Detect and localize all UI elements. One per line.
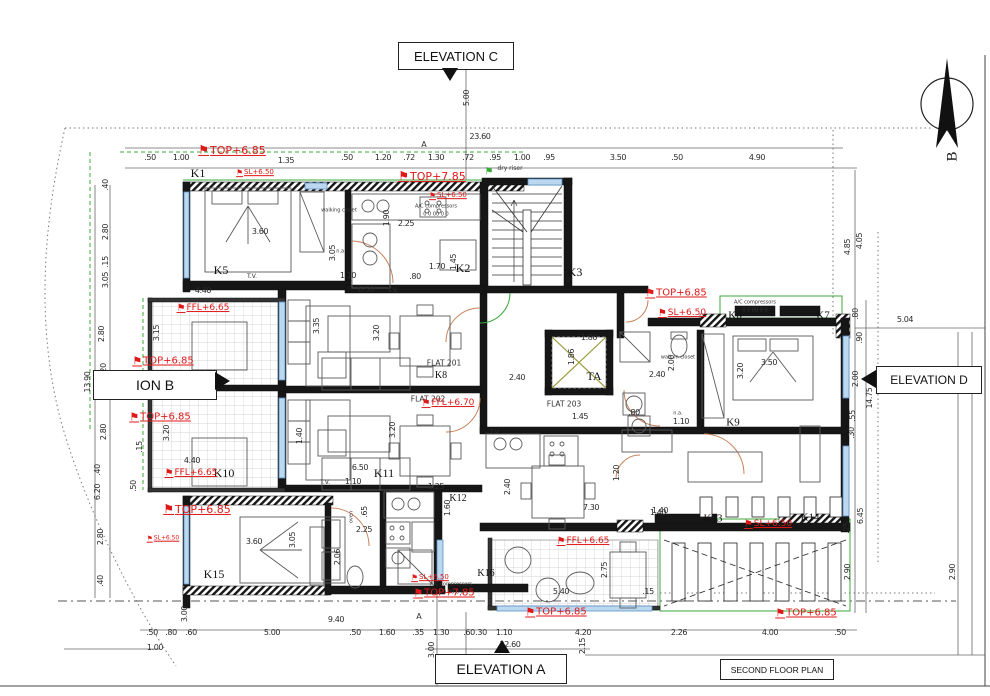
- elevation-c-label: ELEVATION C: [398, 42, 514, 70]
- elevation-a-text: ELEVATION A: [457, 661, 546, 677]
- elevation-d-label: ELEVATION D: [876, 366, 982, 394]
- dry-riser-flag-icon: ⚑: [485, 167, 494, 178]
- elevation-d-arrow: [861, 370, 876, 388]
- elevation-b-text: ION B: [136, 377, 174, 393]
- staircase: [492, 186, 562, 285]
- elevator: [552, 337, 606, 388]
- elevation-c-text: ELEVATION C: [414, 49, 498, 64]
- north-arrow: B: [915, 52, 985, 172]
- floor-plan-canvas: .501.001.35.501.20.721.30.72.951.00.953.…: [0, 0, 990, 696]
- elevation-b-arrow: [215, 372, 230, 390]
- north-letter: B: [945, 151, 962, 161]
- elevation-a-label: ELEVATION A: [435, 654, 567, 684]
- elevation-d-text: ELEVATION D: [890, 373, 968, 387]
- elevation-b-label: ION B: [93, 370, 217, 400]
- floor-plan-title-text: SECOND FLOOR PLAN: [731, 665, 824, 675]
- balcony-grids: [150, 300, 658, 608]
- elevation-c-arrow: [442, 68, 458, 81]
- pergola: [664, 497, 846, 606]
- floor-plan-title: SECOND FLOOR PLAN: [720, 659, 834, 680]
- floorplan-linework: [0, 0, 990, 696]
- elevation-a-arrow: [494, 640, 510, 653]
